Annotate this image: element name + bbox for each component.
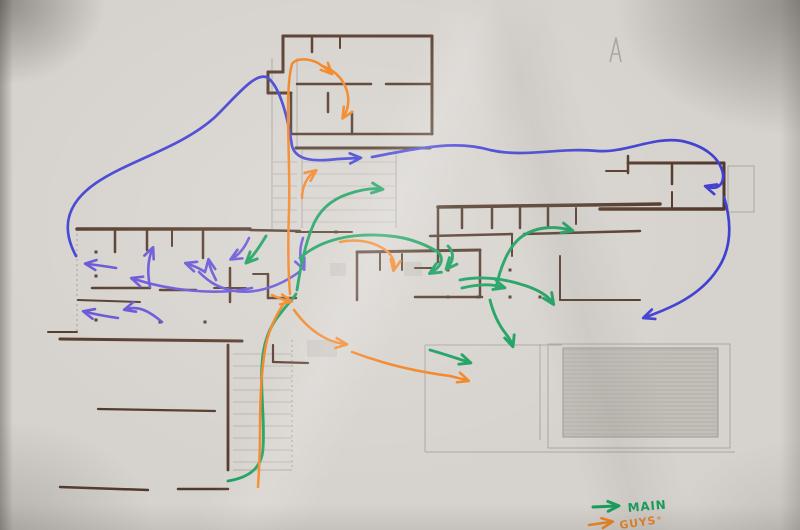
green-swoop-downright — [460, 278, 552, 302]
north-arrow-mark — [610, 38, 621, 62]
wall-segment — [250, 230, 300, 231]
orange-hub-swoop — [294, 310, 344, 344]
column-dot — [95, 319, 98, 322]
violet-arrow-upleft-small — [188, 264, 205, 272]
column-dot — [509, 296, 512, 299]
wall-segment — [438, 204, 660, 207]
violet-arrow-up-small — [209, 262, 216, 280]
legend-guys-arrow-icon — [589, 522, 610, 525]
column-dot — [335, 231, 338, 234]
legend: MAIN GUYS⁺ — [589, 498, 667, 530]
green-down-to-pool — [490, 300, 512, 344]
wall-segment — [273, 362, 308, 363]
legend-main-arrow-icon — [593, 506, 616, 507]
site-plan-svg: MAIN GUYS⁺ — [0, 0, 800, 530]
column-dot — [95, 275, 98, 278]
pool — [563, 348, 718, 437]
right-deck-hatch — [728, 166, 754, 212]
wall-segment — [78, 300, 140, 302]
ramp-hatch — [302, 150, 396, 228]
orange-arc-down-arrow — [340, 240, 394, 268]
violet-hook-hub-left — [233, 238, 249, 258]
violet-arrow-left-upper — [88, 264, 116, 268]
violet-arrow-left-lower — [86, 312, 118, 318]
wall-segment — [98, 409, 215, 411]
upper-stair-hatch — [273, 152, 297, 228]
green-into-pool-corner — [430, 350, 468, 362]
photo-of-floor-plan-sketch: MAIN GUYS⁺ — [0, 0, 800, 530]
green-up-right-arrow — [496, 228, 570, 288]
violet-hook-lower — [127, 308, 162, 322]
violet-arrow-up-room — [148, 250, 152, 287]
gray-patch — [330, 263, 346, 276]
route-blue — [68, 77, 729, 322]
column-dot — [447, 269, 450, 272]
wall-segment — [430, 234, 512, 236]
column-dot — [477, 296, 480, 299]
violet-long-left-arrow — [134, 279, 252, 292]
wall-segment — [60, 487, 148, 490]
blue-descent-arrow — [646, 197, 729, 317]
pencil-underlay — [77, 58, 754, 470]
wall-segment — [524, 231, 640, 234]
orange-top-room-arrow — [322, 66, 348, 116]
legend-guys-label: GUYS⁺ — [619, 513, 664, 530]
green-hook-left-wing — [248, 236, 266, 261]
wall-segment — [357, 250, 480, 252]
column-dot — [509, 269, 512, 272]
column-dot — [539, 296, 542, 299]
column-dot — [447, 296, 450, 299]
column-dot — [204, 321, 207, 324]
column-dot — [95, 251, 98, 254]
wall-segment — [60, 339, 242, 341]
